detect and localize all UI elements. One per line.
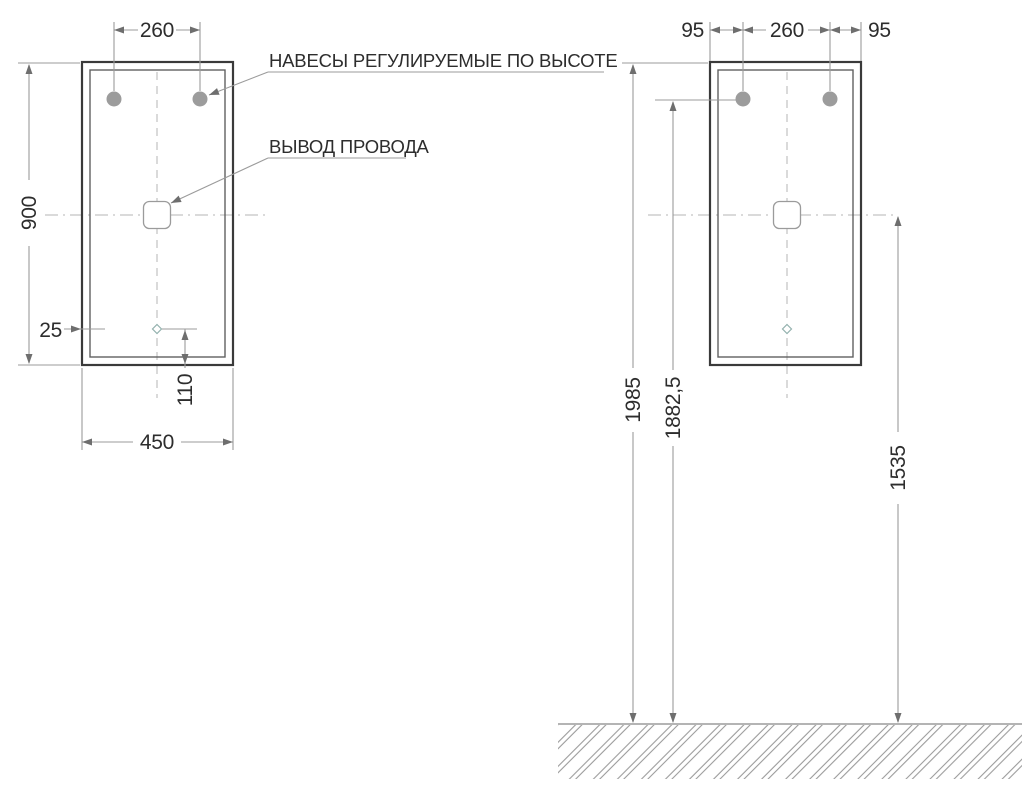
hanger-left-icon [736, 92, 751, 107]
arrow-right-icon [190, 27, 200, 34]
arrow-right-icon [733, 27, 743, 34]
floor-hatch [558, 725, 1022, 779]
arrow-down-icon [630, 713, 637, 723]
wire-outlet-icon [144, 202, 171, 229]
arrow-leader-icon [171, 196, 182, 203]
hanger-right-icon [823, 92, 838, 107]
arrow-down-icon [182, 354, 189, 364]
hanger-left-icon [107, 92, 122, 107]
arrow-right-icon [223, 439, 233, 446]
dim-side-inset: 25 [39, 319, 62, 342]
arrow-down-icon [670, 713, 677, 723]
hanger-right-icon [193, 92, 208, 107]
arrow-right-icon [820, 27, 830, 34]
dim-width: 450 [140, 431, 174, 454]
arrow-left-icon [743, 27, 753, 34]
arrow-left-icon [82, 439, 92, 446]
arrow-right-icon [71, 326, 81, 333]
hangers-note-callout: НАВЕСЫ РЕГУЛИРУЕМЫЕ ПО ВЫСОТЕ [209, 50, 618, 95]
dim-hanger-spacing: 260 [770, 19, 804, 42]
arrow-left-icon [830, 27, 840, 34]
install-view: 95 260 95 1985 1882,5 1535 [622, 19, 910, 723]
dim-hanger-height: 1882,5 [662, 377, 685, 439]
arrow-up-icon [895, 216, 902, 226]
center-marker-icon [783, 325, 792, 334]
leader-line [171, 158, 268, 203]
arrow-up-icon [26, 64, 33, 74]
arrow-left-icon [710, 27, 720, 34]
hangers-note-label: НАВЕСЫ РЕГУЛИРУЕМЫЕ ПО ВЫСОТЕ [269, 50, 618, 71]
drawing-svg: 260 900 25 110 450 НАВЕСЫ РЕГУЛИ [0, 0, 1026, 787]
wire-outlet-icon [774, 202, 801, 229]
front-view: 260 900 25 110 450 НАВЕСЫ РЕГУЛИ [18, 19, 618, 454]
technical-drawing-cabinet-installation: 260 900 25 110 450 НАВЕСЫ РЕГУЛИ [0, 0, 1026, 787]
arrow-right-icon [851, 27, 861, 34]
arrow-down-icon [26, 354, 33, 364]
arrow-down-icon [895, 713, 902, 723]
dim-outlet-bottom-offset: 110 [174, 374, 197, 407]
center-marker-icon [153, 325, 162, 334]
floor [558, 724, 1022, 779]
dim-top-height: 1985 [622, 377, 645, 423]
wire-note-callout: ВЫВОД ПРОВОДА [171, 136, 430, 203]
arrow-left-icon [114, 27, 124, 34]
dim-right-offset: 95 [868, 19, 891, 42]
dim-hanger-spacing: 260 [140, 19, 174, 42]
arrow-up-icon [630, 64, 637, 74]
dim-outlet-height: 1535 [887, 445, 910, 491]
wire-note-label: ВЫВОД ПРОВОДА [269, 136, 430, 157]
dim-height: 900 [18, 196, 41, 230]
arrow-leader-icon [209, 88, 220, 95]
dim-left-offset: 95 [681, 19, 704, 42]
arrow-up-icon [670, 101, 677, 111]
arrow-up-icon [182, 330, 189, 340]
